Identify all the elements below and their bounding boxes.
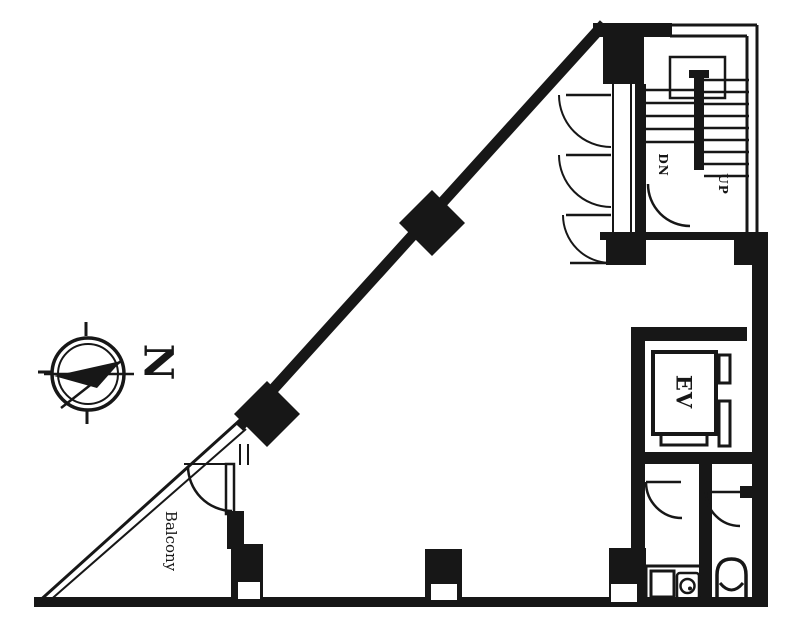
column-stair-bottom-right <box>734 239 768 265</box>
wall-right <box>752 236 768 607</box>
wall-ev-top <box>631 327 747 341</box>
building-outline <box>34 24 768 607</box>
door-arc-stair <box>648 184 690 226</box>
wall-stair-bottom-band <box>600 232 768 240</box>
stair-down-label: DN <box>656 153 670 176</box>
wall-shaft-channel <box>613 62 631 233</box>
floor-plan-drawing: DN UP EV <box>0 0 787 634</box>
column-bottom-3-notch <box>611 584 637 602</box>
balcony-edge-outer <box>36 421 239 604</box>
balcony-edge-inner <box>47 429 246 603</box>
balcony-wall-frame <box>240 444 248 465</box>
sink-drain-dot <box>688 587 692 591</box>
stair-rail <box>694 74 704 170</box>
bottom-columns <box>231 544 646 604</box>
sink-basin <box>651 571 674 597</box>
toilet-seat-line <box>720 583 743 590</box>
compass-rose: N <box>38 322 182 424</box>
stair-up-label: UP <box>716 173 730 195</box>
wall-stair-left-bar <box>635 84 646 233</box>
balcony-door-leaf <box>226 464 234 514</box>
wall-top-thin <box>670 25 757 36</box>
diagonal-columns <box>234 190 465 447</box>
column-bottom-1-notch <box>238 582 260 599</box>
balcony-label: Balcony <box>162 511 180 572</box>
wall-top-band <box>593 23 672 37</box>
sink-unit <box>646 566 702 601</box>
door-arc-wc-left <box>646 482 682 518</box>
wall-core-left <box>631 327 645 551</box>
column-stair-top <box>603 36 644 84</box>
north-label: N <box>135 344 182 381</box>
balcony-wall-lower <box>227 511 244 549</box>
service-core: EV <box>631 327 768 607</box>
toilet <box>717 559 746 601</box>
column-diamond-lower <box>234 381 300 447</box>
elevator-guide-upper <box>719 355 730 383</box>
floor-plan-page: DN UP EV <box>0 0 787 634</box>
wall-wc-right-seg <box>740 486 768 498</box>
stair-block: DN UP <box>559 23 768 265</box>
elevator-label: EV <box>672 375 697 409</box>
door-arc-corridor-2 <box>559 155 611 207</box>
door-arc-corridor-1 <box>559 95 611 147</box>
sink-drain <box>681 579 695 593</box>
wall-stair-right-thin <box>747 25 757 236</box>
column-stair-bottom-left <box>606 239 646 265</box>
column-bottom-2-notch <box>431 584 457 600</box>
stair-treads-up-flight <box>704 80 749 176</box>
toilet-bowl <box>717 559 746 601</box>
elevator-guide-lower <box>719 401 730 446</box>
